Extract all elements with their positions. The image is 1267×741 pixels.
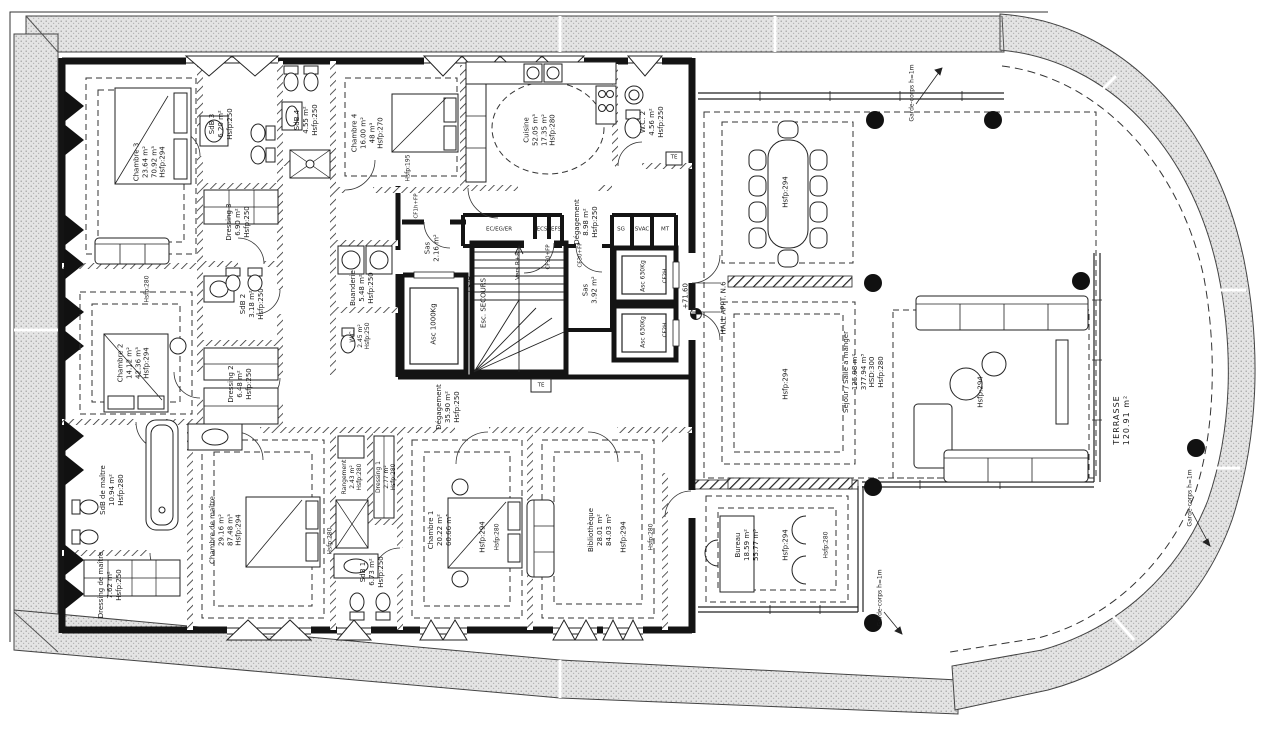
room-label-chambre2: Chambre 214.12 m² 42.36 m³Hsfp:294 [117,344,152,383]
room-label-bureau: Bureau18.59 m² 55.77 m³ [734,529,760,561]
room-label-rangement: Rangement2.43 m² Hsfp:280 [341,460,364,495]
room-label-sejour: Séjour / Salle à manger125.98 m² 377.94 … [842,331,886,413]
annotation-shaft-mt: MT [661,227,669,234]
room-label-sdb4: SdB 44.55 m² Hsfp:250 [293,104,319,136]
room-label-terrasse: TERRASSE120.91 m² [1112,395,1132,446]
annotation-cf2h-asc1000: CF2H [466,276,474,292]
room-label-dressing2: Dressing 26.48 m² Hsfp:250 [227,365,253,402]
bathtub-icon [146,420,178,530]
sofa-icon [95,238,169,264]
annotation-hsfp294-sofa: Hsfp:294 [977,376,986,408]
annotation-hsfp280-biblio: Hsfp:280 [647,523,655,550]
bottom-windows [227,620,643,640]
annotation-level: +71.60 [682,283,691,309]
room-label-chambre1: Chambre 120.22 m² 60.66 m³ [427,511,453,550]
annotation-shaft-svac: SVAC [635,227,649,234]
level-marker-icon [691,309,702,320]
annotation-hsfp280-bureau: Hsfp:280 [822,531,830,558]
room-label-chambre-maitre: Chambre de maître29.16 m² 87.48 m³Hsfp:2… [209,496,244,564]
annotation-hsfp280-c3: Hsfp:280 [143,275,151,302]
annotation-hsfp294-chambre1: Hsfp:294 [479,521,488,553]
annotation-shaft-sg: SG [617,227,625,234]
room-label-wc: W.C.2.45 m² Hsfp:250 [349,322,372,349]
column-dots [864,111,1205,632]
room-label-esc-secours: Esc. SECOURS [480,278,489,328]
annotation-garde-corps-3: Garde-corps h=1m [876,569,884,626]
room-label-hall: HALL APPT. N.6 [720,281,729,334]
annotation-hsfp280-cm: Hsfp:280 [326,527,334,554]
room-label-asc630-a: Asc 630Kg [639,260,647,292]
bed-icon [392,94,458,152]
annotation-hsfp195: Hsfp:195 [404,154,412,181]
annotation-hsfp294-dining: Hsfp:294 [782,176,791,208]
room-label-sdb1: SdB 16.73 m² Hsfp:250 [359,556,385,588]
room-label-asc1000: Asc 1000Kg [430,303,439,344]
room-label-dressing-maitre: Dressing de maître7.62 m² Hsfp:250 [97,552,123,619]
annotation-hsfp280-chambre1: Hsfp:280 [493,523,501,550]
annotation-te-1: TE [671,155,678,162]
annotation-hsfp294-biblio: Hsfp:294 [620,521,629,553]
floor-plan-linework [0,0,1267,741]
annotation-te-2: TE [538,383,545,390]
room-label-sdb3: SdB 36.20 m² Hsfp:250 [208,108,234,140]
room-label-bibliotheque: Bibliothèque28.01 m² 84.03 m³ [587,508,613,552]
annotation-cf30-sas: CF30+FP [578,242,585,267]
annotation-vers-r8: Vers R+8 [514,252,522,280]
annotation-arrows [884,68,1210,634]
annotation-cf2h-asc630a: CF2H [663,269,670,284]
annotation-shaft-eceger: EC/EG/ER [486,227,512,234]
sofa-icon [527,500,554,577]
annotation-cf2h-asc630b: CF2H [663,323,670,338]
room-label-buanderie: Buanderie5.48 m² Hsfp:250 [349,270,375,306]
room-label-chambre3: Chambre 323.64 m² 70.92 m³Hsfp:294 [133,143,168,182]
sofa-icon [914,296,1088,482]
room-label-sdb2: SdB 23.18 m² Hsfp:250 [239,288,265,320]
room-label-cuisine: Cuisine52.05 m³ 17.35 m²Hsfp:280 [523,114,558,146]
room-label-sas2: Sas3.92 m² [581,276,599,303]
room-label-sas1: Sas2.16 m² [423,234,441,261]
annotation-shaft-ecs: ECS [537,227,548,234]
room-label-degagement-sud: Dégagement35.90 m² Hsfp:250 [435,384,461,430]
annotation-cf1h: CF1h+FP [414,193,421,218]
annotation-cf30-stairs: CF30+FP [546,244,553,269]
room-label-degagement-nord: Dégagement8.98 m² Hsfp:250 [573,199,599,245]
annotation-shaft-efs: EFS [551,227,561,234]
annotation-hsfp294-sejour: Hsfp:294 [782,368,791,400]
annotation-garde-corps-2: Garde-corps h=1m [1186,469,1194,526]
room-label-sdb-maitre: SdB de maître10.94 m² Hsfp:280 [99,465,125,515]
annotation-garde-corps-1: Garde-corps h=1m [908,64,916,121]
bed-icon [246,497,320,567]
room-label-wc2: W.C. 24.56 m² Hsfp:250 [639,106,665,138]
annotation-hsfp294-bureau: Hsfp:294 [782,529,791,561]
room-label-chambre4: Chambre 416.00 m² 48 m³Hsfp:270 [351,114,386,153]
room-label-asc630-b: Asc 630Kg [639,316,647,348]
room-label-dressing1: Dressing 12.77 m² Hsfp:280 [375,461,398,493]
room-label-dressing3: Dressing 36.90 m² Hsfp:250 [225,203,251,240]
floor-plan-sheet: Chambre 323.64 m² 70.92 m³Hsfp:294 SdB 3… [0,0,1267,741]
